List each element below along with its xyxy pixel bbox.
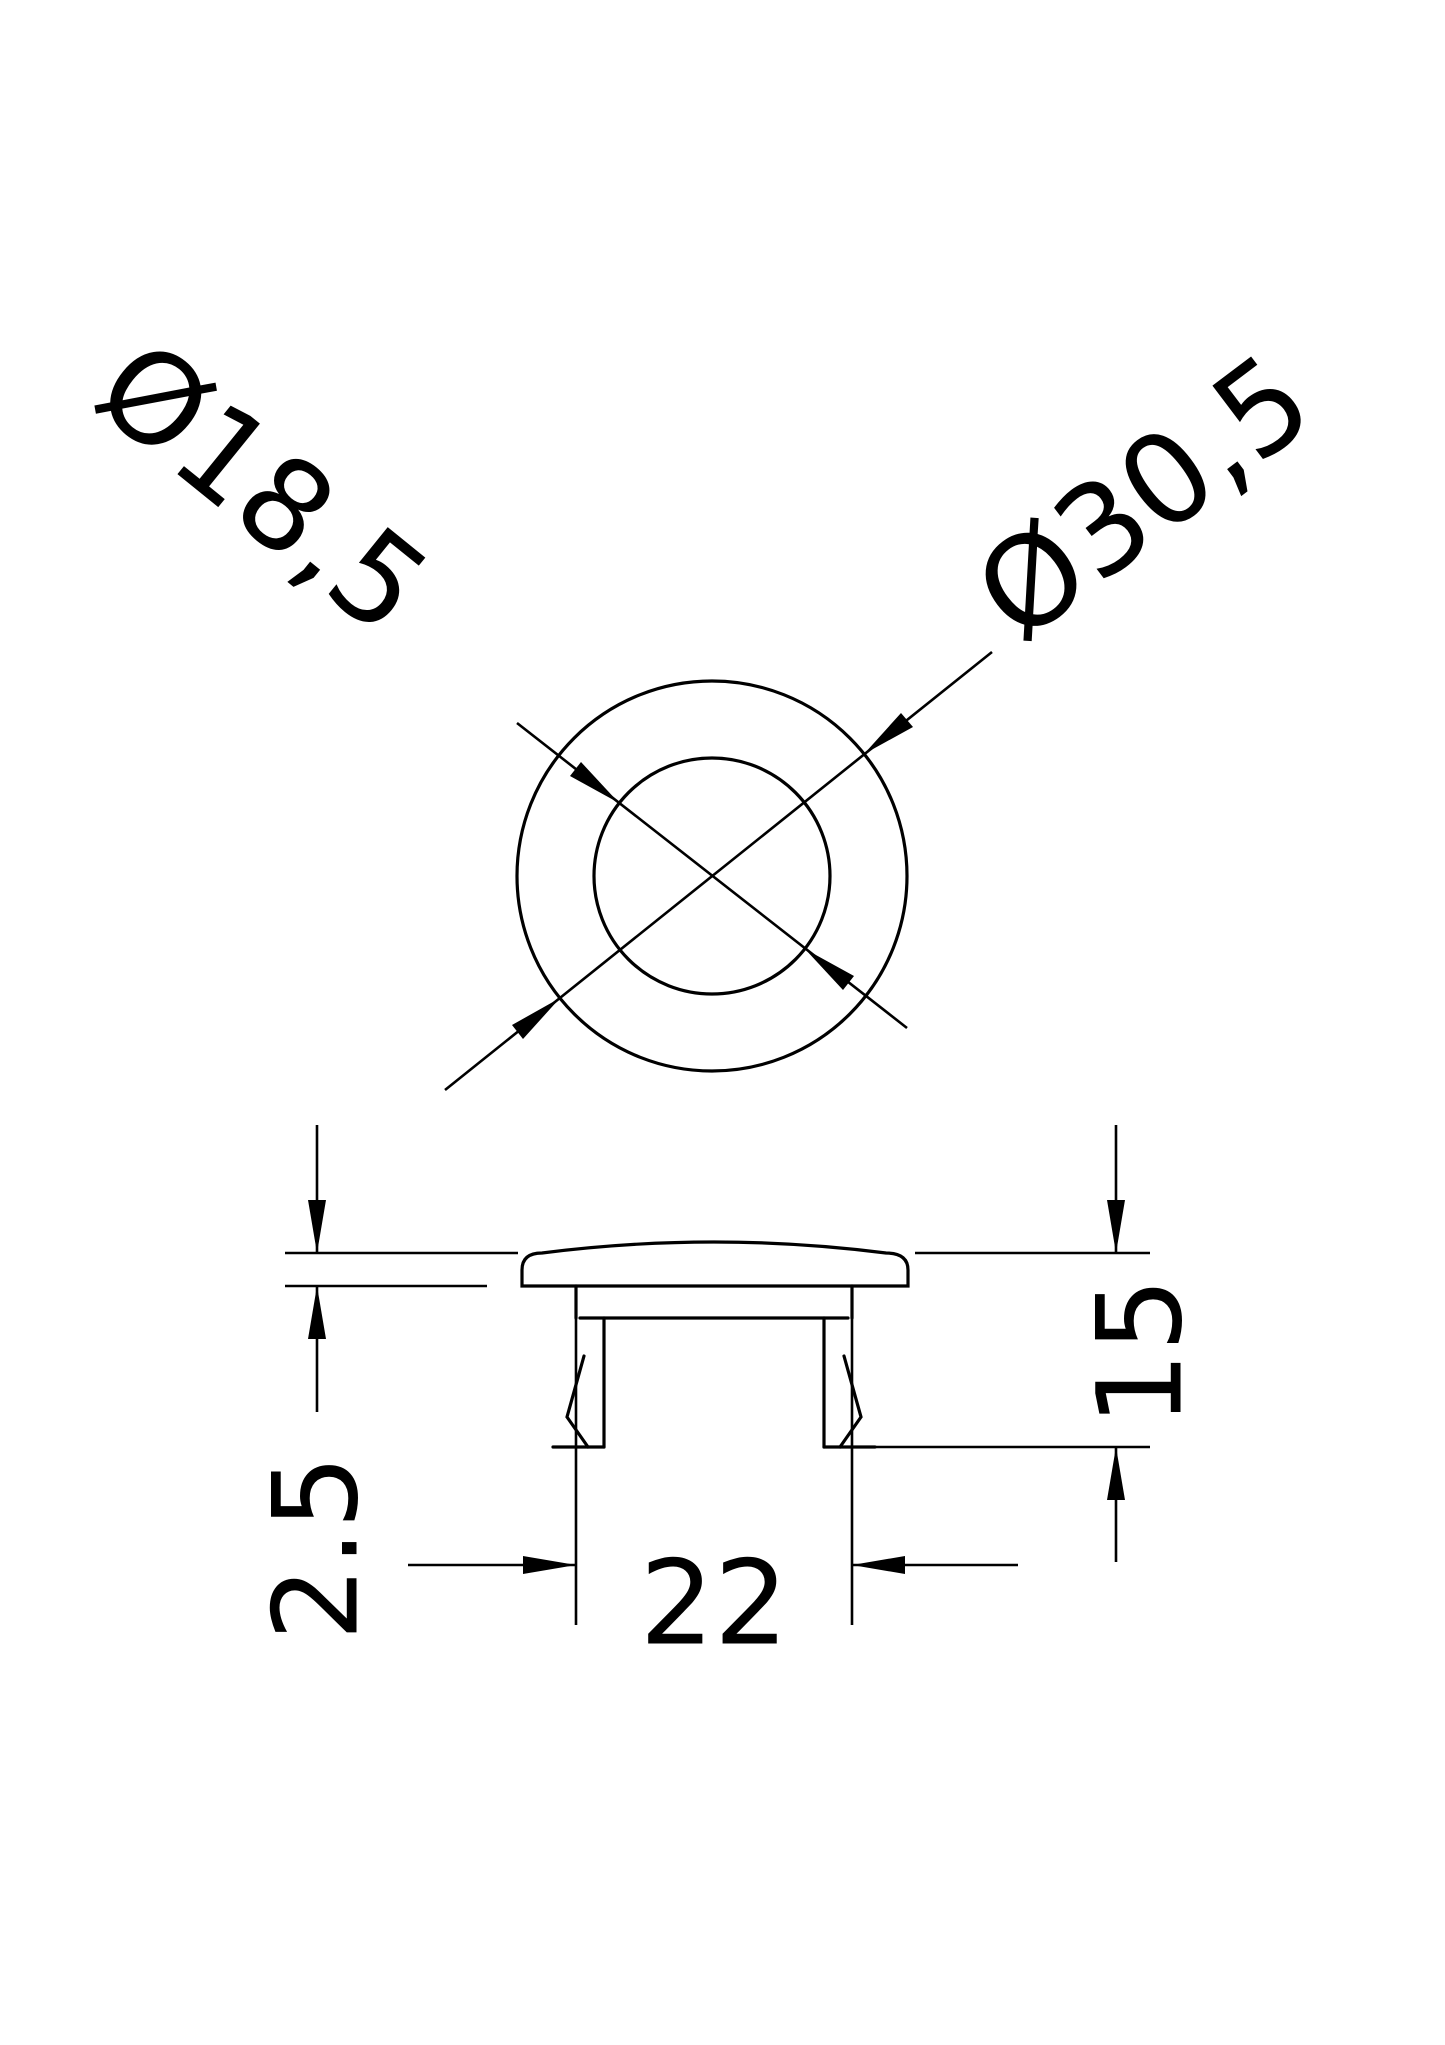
height-arrow-up — [1107, 1447, 1125, 1500]
label-flange-thickness: 2.5 — [248, 1455, 385, 1641]
thickness-arrow-up — [308, 1286, 326, 1339]
thickness-arrow-down — [308, 1200, 326, 1253]
right-snap-barb — [840, 1356, 861, 1447]
label-inner-diameter: Ø18,5 — [70, 313, 454, 663]
inner-diameter-arrow-upper-left — [570, 762, 619, 803]
inner-diameter-arrow-lower-right — [805, 949, 854, 990]
label-outer-diameter: Ø30,5 — [950, 327, 1338, 670]
left-snap-barb — [567, 1356, 588, 1447]
label-width: 22 — [640, 1535, 789, 1672]
width-arrow-left — [852, 1556, 905, 1574]
height-arrow-down — [1107, 1200, 1125, 1253]
outer-diameter-arrow-upper-right — [864, 713, 913, 754]
width-arrow-right — [523, 1556, 576, 1574]
side-view: 2.5 15 22 — [248, 1125, 1209, 1672]
outer-diameter-arrow-lower-left — [512, 998, 560, 1039]
technical-drawing-canvas: Ø18,5 Ø30,5 2.5 — [0, 0, 1445, 2045]
label-height: 15 — [1072, 1278, 1209, 1427]
drawing-page: Ø18,5 Ø30,5 2.5 — [0, 0, 1445, 2045]
top-view: Ø18,5 Ø30,5 — [70, 313, 1338, 1090]
cap-flange-outline — [522, 1242, 908, 1286]
